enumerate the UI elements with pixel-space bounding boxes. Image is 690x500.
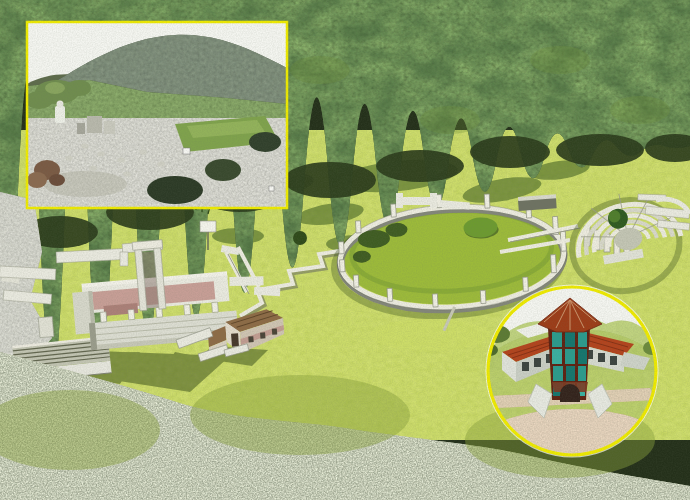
archaeological-site-illustration: [0, 0, 690, 500]
site-scene-canvas: [0, 0, 690, 500]
grain-overlay: [0, 0, 690, 500]
